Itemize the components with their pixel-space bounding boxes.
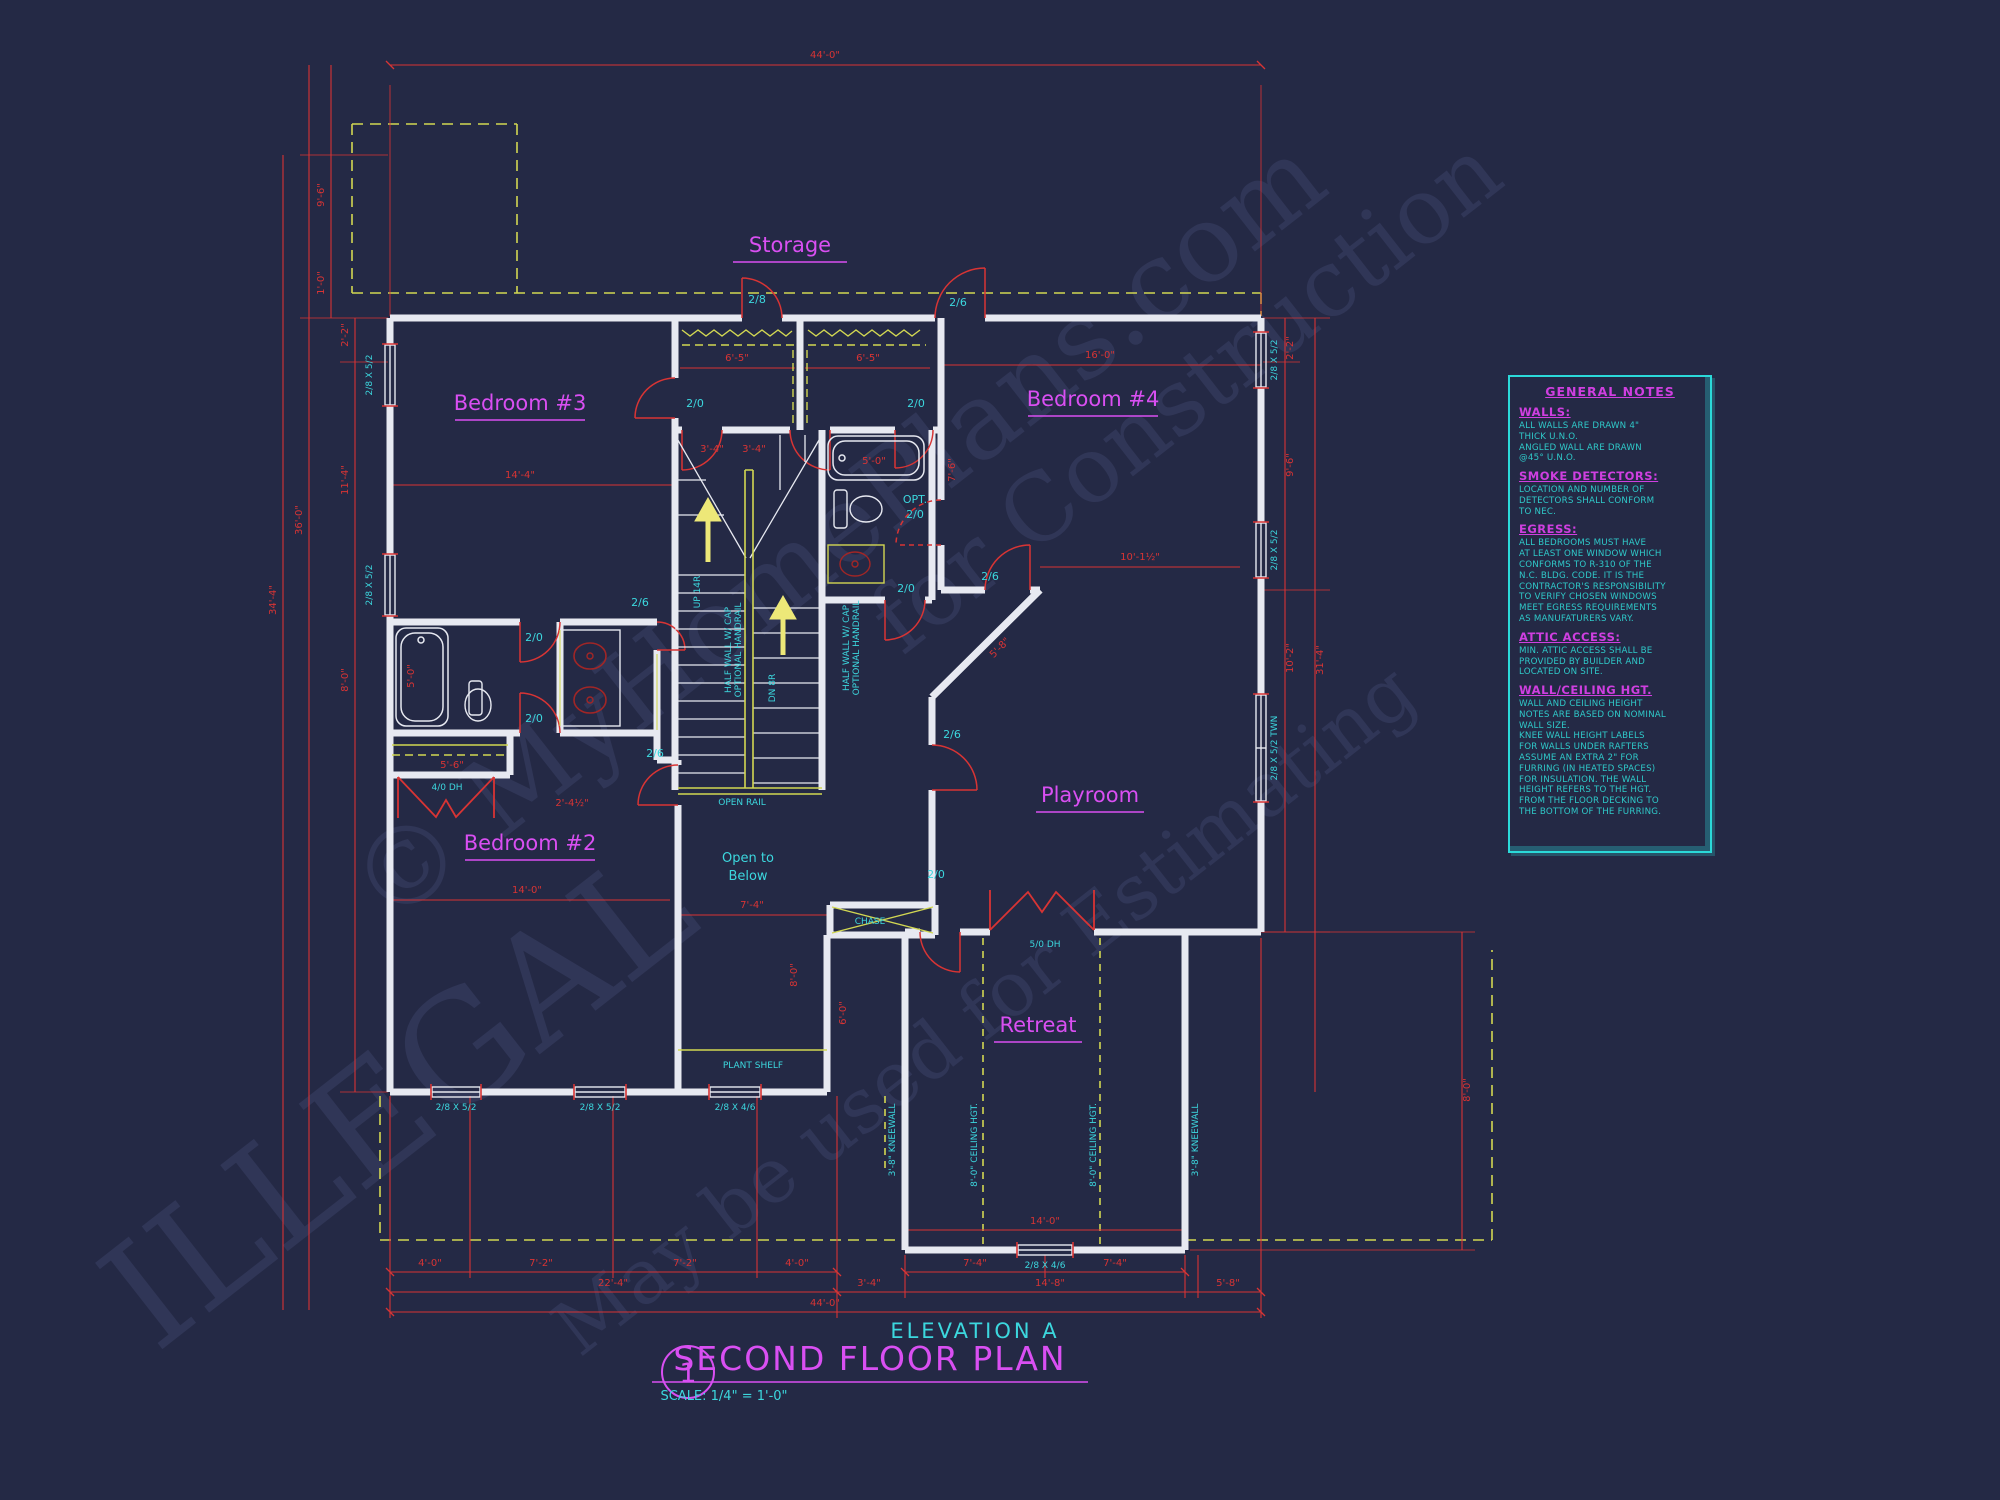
dim-label: 3'-4" [857,1278,881,1289]
note-body-wall-ceiling-hgt: WALL AND CEILING HEIGHT NOTES ARE BASED … [1519,699,1701,818]
room-label-storage: Storage [749,233,831,257]
dim-label: 14'-0" [1030,1216,1060,1227]
door-label: 2/0 [525,712,543,725]
general-notes-panel: GENERAL NOTES WALLS: ALL WALLS ARE DRAWN… [1508,375,1712,853]
dim-label: 7'-6" [947,458,958,482]
dim-label: 3'-4" [742,444,766,455]
note-heading-smoke-detectors: SMOKE DETECTORS: [1519,469,1701,483]
door-label: 2/6 [949,296,967,309]
dim-label: 7'-2" [529,1258,553,1269]
half-wall-label: HALF WALL W/ CAP [842,604,852,691]
dim-label: 5'-6" [440,760,464,771]
stair-dn-label: DN 8R [768,674,778,703]
dim-label: 36'-0" [294,505,305,535]
note-body-walls: ALL WALLS ARE DRAWN 4" THICK U.N.O. ANGL… [1519,421,1701,464]
kneewall-label: 3'-8" KNEEWALL [888,1104,898,1177]
window-label: 2/8 X 5/2 TWN [1270,716,1280,781]
general-notes-title: GENERAL NOTES [1519,384,1701,399]
note-body-attic-access: MIN. ATTIC ACCESS SHALL BE PROVIDED BY B… [1519,646,1701,678]
floor-plan-canvas: © MyHomePlans.com ILLEGAL May be used fo… [0,0,2000,1500]
window-label: 2/8 X 4/6 [1025,1261,1066,1271]
note-body-smoke-detectors: LOCATION AND NUMBER OF DETECTORS SHALL C… [1519,485,1701,517]
window-label: 2/8 X 5/2 [436,1103,477,1113]
dim-label: 7'-4" [963,1258,987,1269]
dim-label: 8'-0" [789,963,800,987]
room-label-bedroom3: Bedroom #3 [454,391,587,415]
dim-label: 44'-0" [810,50,840,61]
room-label-retreat: Retreat [1000,1013,1077,1037]
dim-label: 16'-0" [1085,350,1115,361]
dim-label: 31'-4" [1315,645,1326,675]
window-label: 2/8 X 4/6 [715,1103,756,1113]
dim-label: 10'-2" [1285,643,1296,673]
window-label: 2/8 X 5/2 [580,1103,621,1113]
dim-label: 10'-1½" [1120,551,1160,563]
note-body-egress: ALL BEDROOMS MUST HAVE AT LEAST ONE WIND… [1519,538,1701,624]
dim-label: 9'-6" [1285,453,1296,477]
half-wall-label: OPTIONAL HANDRAIL [852,601,862,696]
room-label-bedroom4: Bedroom #4 [1027,387,1160,411]
dim-label: 34'-4" [268,585,279,615]
door-label: 2/6 [943,728,961,741]
door-label: 2/0 [525,631,543,644]
door-label: 2/0 [686,397,704,410]
chase-label: CHASE [855,917,886,927]
dim-label: 8'-0" [1462,1078,1473,1102]
window-label: 2/8 X 5/2 [1270,340,1280,381]
toilet [465,681,491,721]
half-wall-label: HALF WALL W/ CAP [724,606,734,693]
open-to-below-label: Below [728,869,767,884]
dim-label: 5'-0" [406,664,417,688]
dim-label: 2'-4½" [555,797,588,809]
door-label: 2/8 [748,293,766,306]
half-wall-label: OPTIONAL HANDRAIL [734,603,744,698]
window-label: 2/8 X 5/2 [1270,530,1280,571]
open-rail-label: OPEN RAIL [718,798,766,808]
window-label: 4/0 DH [431,783,462,793]
watermark-layer: © MyHomePlans.com ILLEGAL May be used fo… [71,113,1521,1382]
dim-label: 7'-4" [740,900,764,911]
dim-label: 4'-0" [418,1258,442,1269]
dim-label: 44'-0" [810,1298,840,1309]
dim-label: 22'-4" [598,1278,628,1289]
plan-scale: SCALE: 1/4" = 1'-0" [660,1389,787,1404]
dim-label: 6'-5" [725,353,749,364]
title-block: 1 ELEVATION A SECOND FLOOR PLAN SCALE: 1… [652,1319,1088,1404]
dim-label: 6'-0" [838,1001,849,1025]
dim-label: 7'-2" [673,1258,697,1269]
kneewall-label: 3'-8" KNEEWALL [1191,1104,1201,1177]
door-label: 2/0 [897,582,915,595]
ceiling-hgt-label: 8'-0" CEILING HGT. [970,1103,980,1187]
dim-label: 14'-0" [512,885,542,896]
dim-label: 14'-8" [1035,1278,1065,1289]
door-label: 2/6 [981,570,999,583]
dim-label: 3'-4" [700,444,724,455]
dim-label: 6'-5" [856,353,880,364]
window-label: 2/8 X 5/2 [365,565,375,606]
dim-label: 2'-2" [1285,336,1296,360]
room-label-playroom: Playroom [1041,783,1139,807]
door-label: 2/6 [631,596,649,609]
dim-label: 5'-8" [1216,1278,1240,1289]
dim-label: 14'-4" [505,470,535,481]
room-label-bedroom2: Bedroom #2 [464,831,597,855]
door-label: OPT. [903,493,927,506]
note-heading-attic-access: ATTIC ACCESS: [1519,630,1701,644]
dim-label: 7'-4" [1103,1258,1127,1269]
note-heading-walls: WALLS: [1519,405,1701,419]
note-heading-wall-ceiling-hgt: WALL/CEILING HGT. [1519,683,1701,697]
plant-shelf-label: PLANT SHELF [723,1061,783,1071]
ceiling-hgt-label: 8'-0" CEILING HGT. [1089,1103,1099,1187]
window-label: 2/8 X 5/2 [365,355,375,396]
dim-label: 8'-0" [340,668,351,692]
dim-label: 11'-4" [340,465,351,495]
dim-label: 2'-2" [340,323,351,347]
door-label: 2/0 [906,508,924,521]
stair-up-label: UP 14R [693,576,703,609]
bathtub [396,628,448,726]
window-label: 5/0 DH [1029,940,1060,950]
dim-label: 9'-6" [316,183,327,207]
open-to-below-label: Open to [722,851,774,866]
dim-label: 4'-0" [785,1258,809,1269]
door-label: 2/0 [907,397,925,410]
door-label: 2/6 [646,747,664,760]
dim-label: 5'-0" [862,456,886,467]
dim-label: 1'-0" [316,271,327,295]
note-heading-egress: EGRESS: [1519,522,1701,536]
door-label: 2/0 [927,868,945,881]
plan-title: SECOND FLOOR PLAN [673,1339,1066,1378]
